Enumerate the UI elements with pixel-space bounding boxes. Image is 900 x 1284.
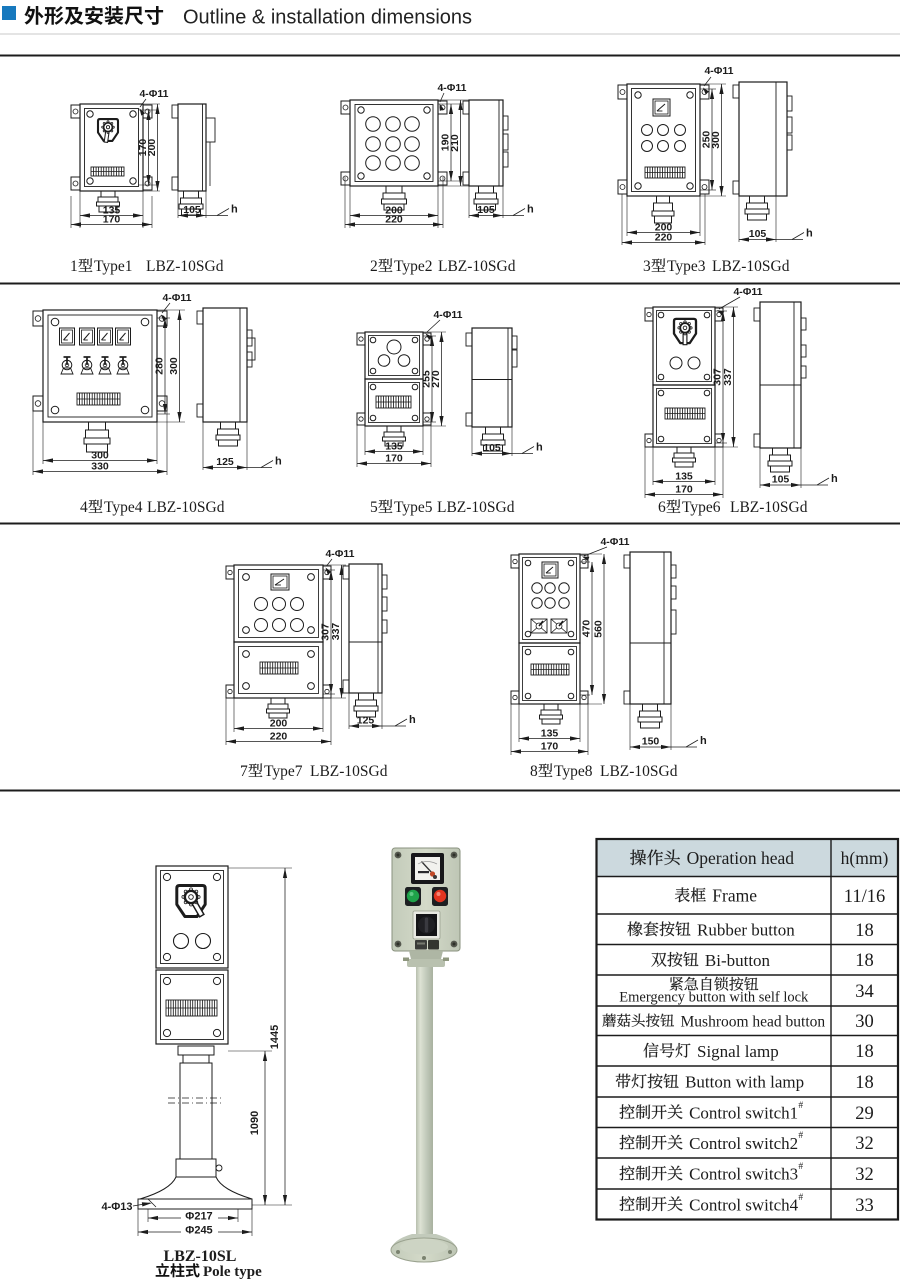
svg-text:18: 18 <box>855 921 874 941</box>
svg-text:Outline & installation dimensi: Outline & installation dimensions <box>183 7 472 29</box>
svg-text:Operation head: Operation head <box>687 848 795 868</box>
svg-text:18: 18 <box>855 951 874 971</box>
svg-text:3: 3 <box>643 258 651 275</box>
svg-text:Φ245: Φ245 <box>185 1225 212 1237</box>
svg-text:Type5: Type5 <box>394 499 433 516</box>
svg-text:105: 105 <box>183 204 201 216</box>
svg-text:1445: 1445 <box>269 1025 281 1049</box>
svg-text:4-Φ11: 4-Φ11 <box>704 65 733 77</box>
svg-text:4-Φ11: 4-Φ11 <box>437 82 466 94</box>
svg-text:4-Φ11: 4-Φ11 <box>433 309 462 321</box>
svg-text:LBZ-10SGd: LBZ-10SGd <box>438 258 516 275</box>
svg-text:125: 125 <box>357 715 375 727</box>
svg-text:h: h <box>409 714 416 726</box>
svg-text:h(mm): h(mm) <box>841 848 889 868</box>
svg-text:Type2: Type2 <box>394 258 433 275</box>
svg-text:Control switch3: Control switch3 <box>689 1165 798 1184</box>
svg-text:Pole type: Pole type <box>203 1264 262 1279</box>
svg-text:h: h <box>527 204 534 216</box>
svg-text:560: 560 <box>593 620 605 638</box>
svg-text:Bi-button: Bi-button <box>705 951 771 970</box>
svg-text:170: 170 <box>385 453 403 465</box>
svg-text:Type8: Type8 <box>554 763 593 780</box>
svg-text:105: 105 <box>477 204 495 216</box>
svg-text:#: # <box>798 1101 803 1111</box>
svg-text:#: # <box>798 1162 803 1172</box>
svg-text:200: 200 <box>270 718 288 730</box>
svg-text:Signal lamp: Signal lamp <box>697 1042 779 1061</box>
svg-text:220: 220 <box>655 232 673 244</box>
svg-text:Type6: Type6 <box>682 499 721 516</box>
svg-text:7: 7 <box>240 763 248 780</box>
svg-text:220: 220 <box>270 731 288 743</box>
svg-text:h: h <box>275 456 282 468</box>
svg-text:150: 150 <box>642 736 660 748</box>
svg-text:1: 1 <box>70 258 78 275</box>
svg-text:h: h <box>231 204 238 216</box>
svg-text:30: 30 <box>855 1012 874 1032</box>
svg-text:18: 18 <box>855 1042 874 1062</box>
svg-text:h: h <box>806 228 813 240</box>
svg-text:Control switch4: Control switch4 <box>689 1195 799 1214</box>
svg-text:135: 135 <box>541 728 559 740</box>
svg-text:LBZ-10SL: LBZ-10SL <box>164 1248 237 1265</box>
svg-text:h: h <box>700 735 707 747</box>
svg-text:170: 170 <box>541 741 559 753</box>
svg-text:Type4: Type4 <box>104 499 143 516</box>
svg-text:29: 29 <box>855 1104 874 1124</box>
svg-text:270: 270 <box>430 370 442 388</box>
svg-text:2: 2 <box>370 258 378 275</box>
svg-text:6: 6 <box>658 499 666 516</box>
svg-text:Control switch1: Control switch1 <box>689 1103 798 1122</box>
svg-text:Type1: Type1 <box>94 258 133 275</box>
svg-text:Emergency button with self loc: Emergency button with self lock <box>619 990 809 1006</box>
svg-text:11/16: 11/16 <box>844 887 885 907</box>
svg-text:#: # <box>798 1131 803 1141</box>
svg-text:170: 170 <box>103 214 121 226</box>
svg-text:105: 105 <box>749 228 767 240</box>
svg-text:4-Φ11: 4-Φ11 <box>600 536 629 548</box>
svg-text:h: h <box>831 473 838 485</box>
svg-text:LBZ-10SGd: LBZ-10SGd <box>730 499 808 516</box>
svg-text:LBZ-10SGd: LBZ-10SGd <box>437 499 515 516</box>
svg-text:4-Φ11: 4-Φ11 <box>325 548 354 560</box>
svg-text:135: 135 <box>385 441 403 453</box>
svg-text:h: h <box>536 442 543 454</box>
svg-text:220: 220 <box>385 214 403 226</box>
svg-text:Type7: Type7 <box>264 763 303 780</box>
svg-text:4-Φ11: 4-Φ11 <box>162 292 191 304</box>
svg-text:300: 300 <box>168 357 180 375</box>
svg-text:32: 32 <box>855 1134 874 1154</box>
svg-text:210: 210 <box>449 134 461 152</box>
svg-text:1090: 1090 <box>249 1111 261 1135</box>
svg-text:330: 330 <box>91 461 109 473</box>
svg-text:4-Φ13: 4-Φ13 <box>101 1201 132 1213</box>
svg-text:470: 470 <box>581 620 593 638</box>
svg-text:200: 200 <box>146 139 158 157</box>
svg-text:125: 125 <box>216 456 234 468</box>
svg-text:300: 300 <box>710 131 722 149</box>
svg-text:LBZ-10SGd: LBZ-10SGd <box>146 258 224 275</box>
svg-text:4-Φ11: 4-Φ11 <box>139 88 168 100</box>
svg-text:34: 34 <box>855 982 874 1002</box>
svg-text:337: 337 <box>330 623 342 641</box>
svg-text:280: 280 <box>154 357 166 375</box>
svg-text:LBZ-10SGd: LBZ-10SGd <box>712 258 790 275</box>
svg-text:32: 32 <box>855 1165 874 1185</box>
svg-text:Type3: Type3 <box>667 258 706 275</box>
svg-text:5: 5 <box>370 499 378 516</box>
svg-text:LBZ-10SGd: LBZ-10SGd <box>600 763 678 780</box>
svg-text:18: 18 <box>855 1073 874 1093</box>
svg-text:105: 105 <box>772 474 790 486</box>
svg-text:Control switch2: Control switch2 <box>689 1134 798 1153</box>
svg-text:Φ217: Φ217 <box>185 1211 212 1223</box>
svg-text:170: 170 <box>675 484 693 496</box>
svg-text:Button with lamp: Button with lamp <box>685 1073 804 1092</box>
svg-text:8: 8 <box>530 763 538 780</box>
svg-text:Rubber button: Rubber button <box>697 920 795 939</box>
svg-text:105: 105 <box>483 442 501 454</box>
svg-text:135: 135 <box>675 471 693 483</box>
svg-text:4-Φ11: 4-Φ11 <box>733 286 762 298</box>
svg-text:Mushroom head button: Mushroom head button <box>681 1013 826 1030</box>
svg-text:Frame: Frame <box>712 886 757 906</box>
svg-text:33: 33 <box>855 1196 874 1216</box>
svg-text:337: 337 <box>722 368 734 386</box>
svg-text:LBZ-10SGd: LBZ-10SGd <box>310 763 388 780</box>
svg-text:4: 4 <box>80 499 88 516</box>
svg-text:LBZ-10SGd: LBZ-10SGd <box>147 499 225 516</box>
svg-text:#: # <box>798 1193 803 1203</box>
